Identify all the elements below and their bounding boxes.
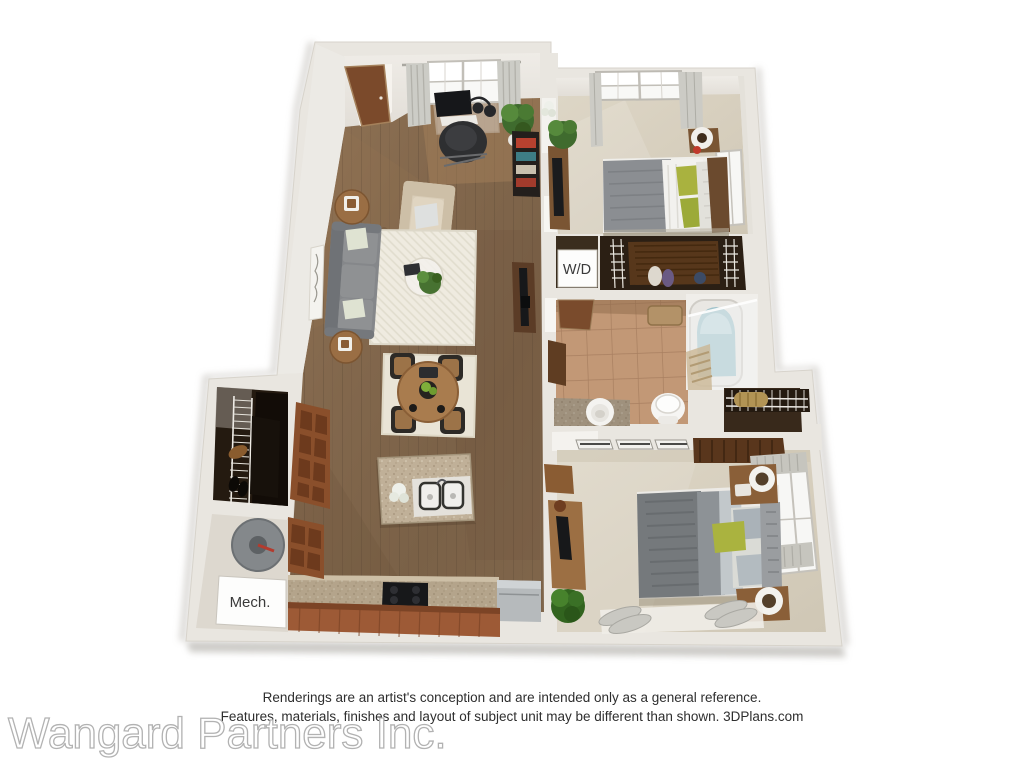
svg-text:Renderings are an artist's con: Renderings are an artist's conception an… <box>263 690 762 705</box>
svg-text:W/D: W/D <box>563 262 591 278</box>
svg-text:Mech.: Mech. <box>230 594 271 611</box>
svg-text:Wangard Partners Inc.: Wangard Partners Inc. <box>8 709 447 758</box>
